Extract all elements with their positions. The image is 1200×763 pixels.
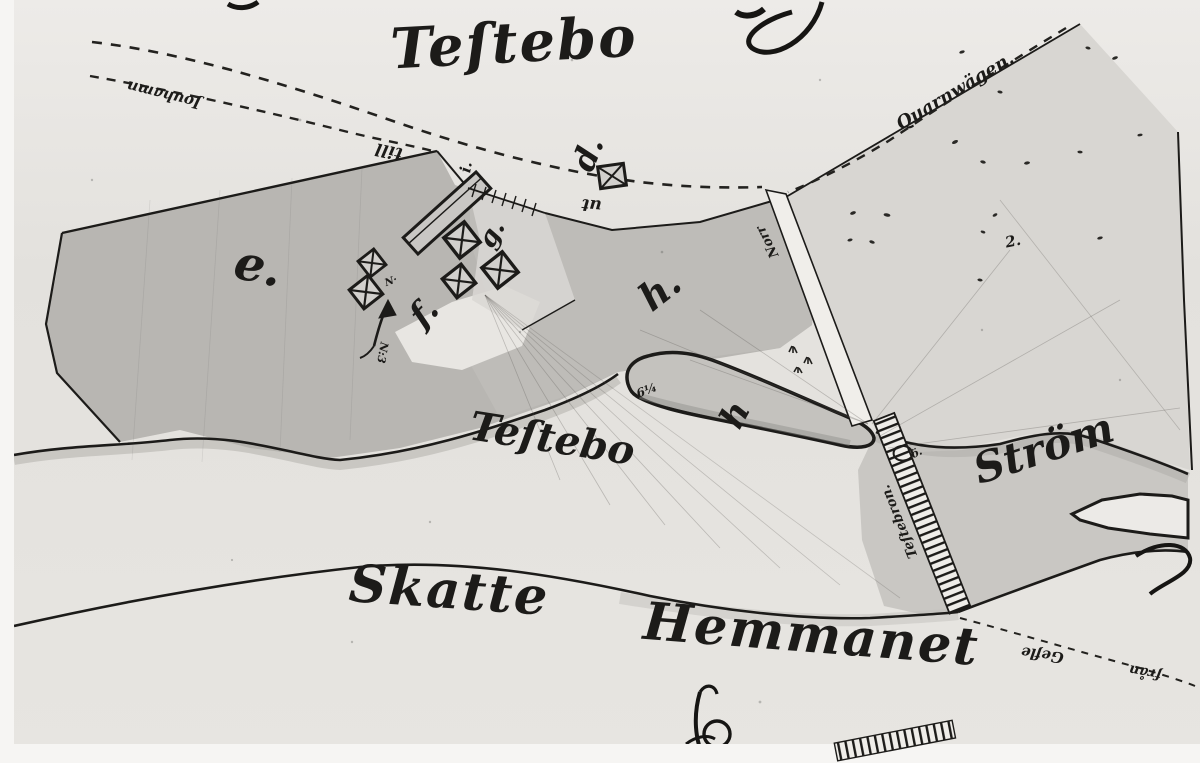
photo-border-left — [0, 0, 14, 763]
historic-map-photo: Teſtebo Teſtebo Ström Skatte Hemmanet Jo… — [0, 0, 1200, 763]
photo-border-bottom — [0, 744, 1200, 763]
map-canvas: Teſtebo Teſtebo Ström Skatte Hemmanet Jo… — [0, 0, 1200, 763]
label-testebo-title: Teſtebo — [389, 4, 639, 83]
label-ut: ut — [580, 194, 602, 216]
